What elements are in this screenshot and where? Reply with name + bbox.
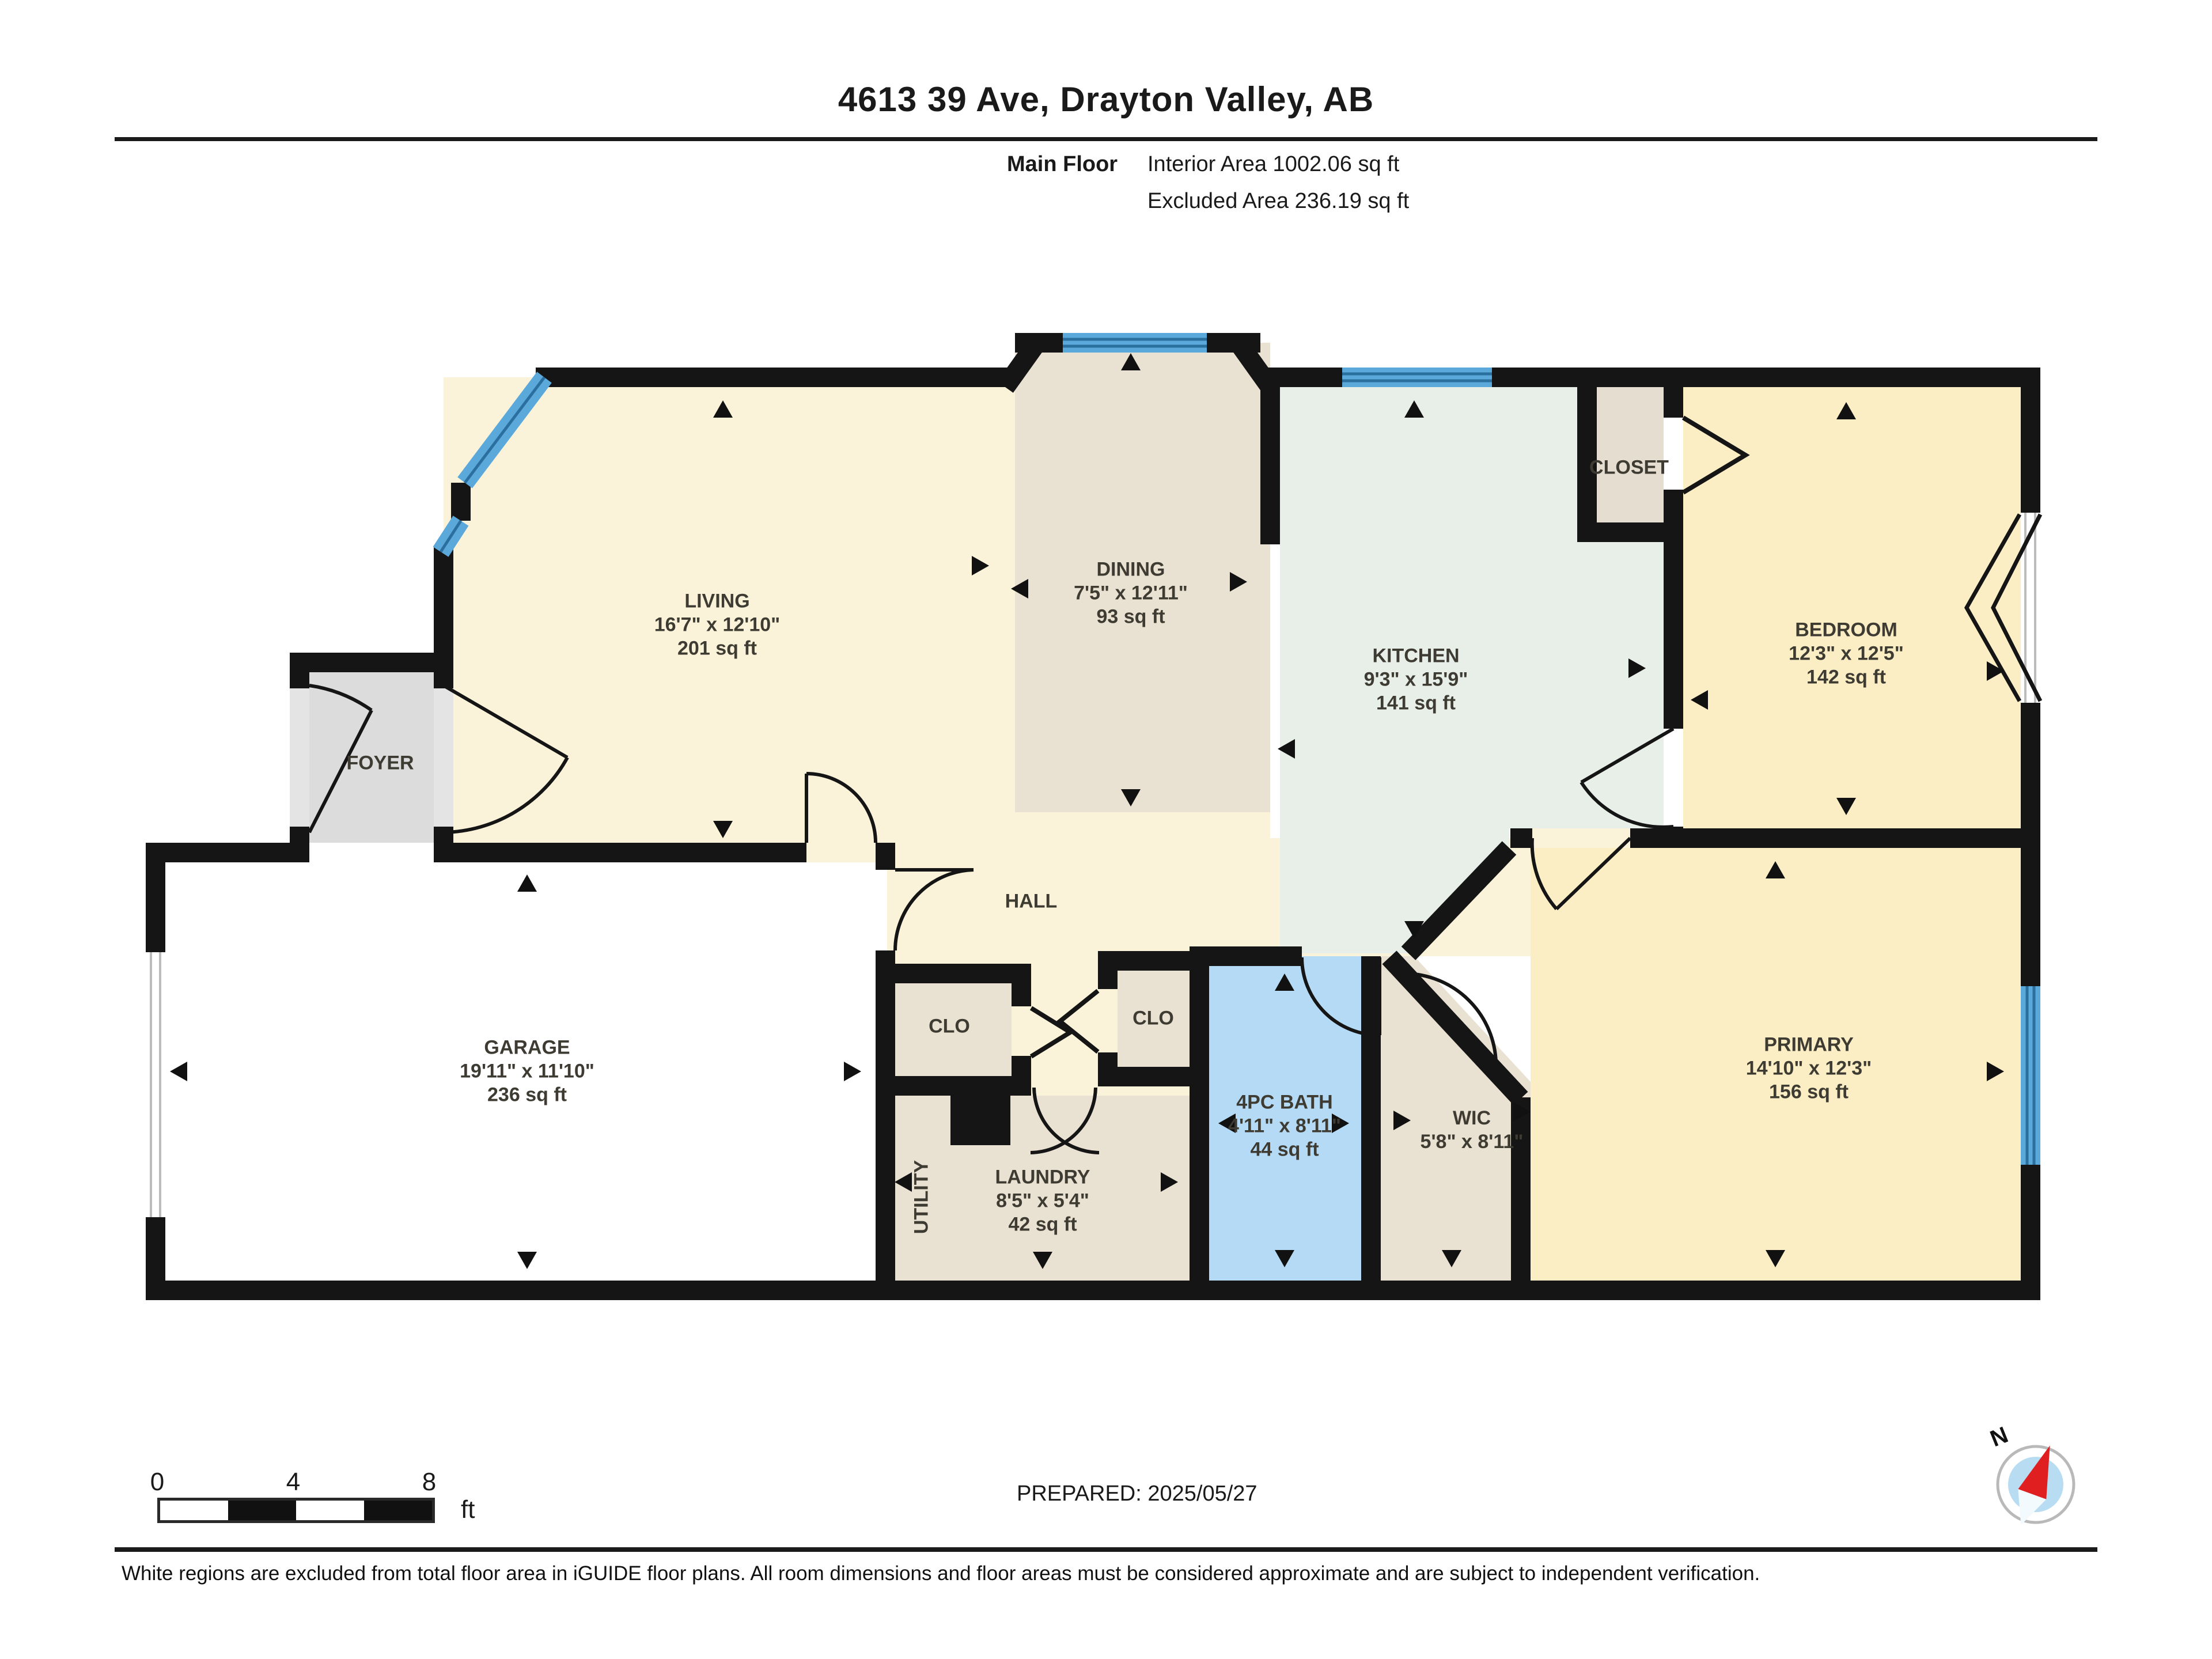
room-name: HALL [1005,890,1058,914]
prepared-date: PREPARED: 2025/05/27 [1017,1482,1257,1506]
garage-door [146,952,165,1217]
room-label-closet: CLOSET [1589,456,1669,480]
room-label-dining: DINING 7'5" x 12'11" 93 sq ft [1074,558,1188,629]
floorplan-page: N 4613 39 Ave, Drayton Valley, AB Main F… [0,0,2212,1659]
room-label-bedroom: BEDROOM 12'3" x 12'5" 142 sq ft [1789,619,1904,690]
foyer-living-opening [434,688,453,827]
window-kitchen [1342,368,1492,387]
room-label-hall: HALL [1005,890,1058,914]
room-dims: 14'10" x 12'3" [1746,1057,1872,1081]
room-area: 42 sq ft [995,1213,1090,1237]
room-dims: 4'11" x 8'11" [1228,1115,1341,1138]
room-dims: 8'5" x 5'4" [995,1190,1090,1213]
footer-rule [115,1547,2097,1552]
header-rule [115,137,2097,141]
room-area: 236 sq ft [460,1084,594,1107]
scale-bar-segment [228,1501,296,1520]
room-name: CLOSET [1589,456,1669,480]
scale-unit: ft [461,1495,475,1524]
room-dims: 16'7" x 12'10" [654,613,781,637]
room-label-foyer: FOYER [346,752,414,775]
scale-tick-0: 0 [150,1468,164,1497]
hall-garage-wall-opening [806,843,876,862]
room-label-bath: 4PC BATH 4'11" x 8'11" 44 sq ft [1228,1091,1341,1162]
page-title: 4613 39 Ave, Drayton Valley, AB [0,79,2212,119]
room-area: 142 sq ft [1789,666,1904,690]
window-primary [2021,986,2040,1165]
room-dims: 7'5" x 12'11" [1074,582,1188,605]
room-name: WIC [1421,1107,1524,1130]
floorplan-drawing: N [0,0,2212,1659]
room-area: 201 sq ft [654,637,781,661]
room-dims: 19'11" x 11'10" [460,1060,594,1084]
primary-door-gap-fill [1531,828,1630,848]
room-name: CLO [1132,1007,1174,1031]
scale-bar-segment [364,1501,432,1520]
floor-label: Main Floor [1007,152,1118,177]
room-name: DINING [1074,558,1188,582]
room-bedroom-fill [1683,387,2021,828]
utility-wall-stub [950,1096,1010,1145]
room-closet-fill [1597,387,1664,522]
room-label-kitchen: KITCHEN 9'3" x 15'9" 141 sq ft [1364,645,1468,715]
room-name: CLO [929,1015,970,1039]
room-label-living: LIVING 16'7" x 12'10" 201 sq ft [654,590,781,661]
room-name: 4PC BATH [1228,1091,1341,1115]
scale-bar-segment [296,1501,364,1520]
room-dims: 12'3" x 12'5" [1789,642,1904,666]
window-dining [1063,333,1207,353]
room-area: 156 sq ft [1746,1081,1872,1104]
compass-icon: N [1987,1422,2074,1531]
room-label-utility: UTILITY [911,1160,933,1234]
interior-area-text: Interior Area 1002.06 sq ft [1147,152,1399,177]
scale-bar-ticks: 0 4 8 [146,1468,457,1494]
room-label-clo-right: CLO [1132,1007,1174,1031]
room-name: KITCHEN [1364,645,1468,668]
room-name: GARAGE [460,1036,594,1060]
room-label-clo-left: CLO [929,1015,970,1039]
room-label-laundry: LAUNDRY 8'5" x 5'4" 42 sq ft [995,1166,1090,1237]
room-name: FOYER [346,752,414,775]
compass-north-label: N [1987,1422,2012,1452]
room-name: BEDROOM [1789,619,1904,642]
foyer-entry-opening [290,688,309,827]
room-dims: 5'8" x 8'11" [1421,1130,1524,1154]
room-dims: 9'3" x 15'9" [1364,668,1468,692]
scale-tick-8: 8 [422,1468,436,1497]
excluded-area-text: Excluded Area 236.19 sq ft [1147,189,1409,214]
room-label-primary: PRIMARY 14'10" x 12'3" 156 sq ft [1746,1033,1872,1104]
room-area: 141 sq ft [1364,692,1468,715]
scale-bar-segment [160,1501,228,1520]
room-name: PRIMARY [1746,1033,1872,1057]
room-area: 44 sq ft [1228,1138,1341,1162]
room-label-garage: GARAGE 19'11" x 11'10" 236 sq ft [460,1036,594,1107]
room-label-wic: WIC 5'8" x 8'11" [1421,1107,1524,1154]
scale-bar [157,1498,435,1523]
room-area: 93 sq ft [1074,605,1188,629]
room-name: LAUNDRY [995,1166,1090,1190]
disclaimer-text: White regions are excluded from total fl… [122,1562,2080,1585]
room-name: LIVING [654,590,781,613]
scale-tick-4: 4 [286,1468,300,1497]
